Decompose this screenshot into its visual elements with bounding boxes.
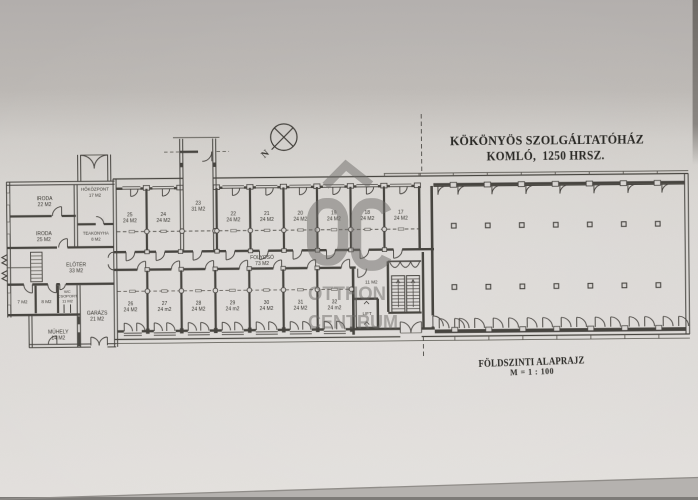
svg-text:24 M2: 24 M2 xyxy=(293,217,307,223)
svg-text:KOMLÓ, 1250 HRSZ.: KOMLÓ, 1250 HRSZ. xyxy=(487,148,605,163)
svg-text:24 M2: 24 M2 xyxy=(156,218,170,224)
svg-text:73 M2: 73 M2 xyxy=(255,261,269,267)
svg-text:24 M2: 24 M2 xyxy=(260,306,274,312)
svg-text:21 M2: 21 M2 xyxy=(90,317,104,323)
svg-text:24 M2: 24 M2 xyxy=(192,307,206,313)
svg-text:22 M2: 22 M2 xyxy=(38,202,52,208)
svg-text:24 M2: 24 M2 xyxy=(260,217,274,223)
svg-text:OTTHON: OTTHON xyxy=(308,283,386,305)
svg-text:24 M2: 24 M2 xyxy=(226,217,240,223)
svg-text:24 m2: 24 m2 xyxy=(158,307,172,313)
svg-text:M = 1 : 100: M = 1 : 100 xyxy=(510,366,554,377)
svg-text:24 M2: 24 M2 xyxy=(123,218,137,224)
svg-text:TEAKONYHA: TEAKONYHA xyxy=(83,231,109,236)
svg-text:25 M2: 25 M2 xyxy=(37,237,51,243)
svg-text:24 M2: 24 M2 xyxy=(124,307,138,313)
svg-text:8 M2: 8 M2 xyxy=(41,299,52,304)
svg-text:33 M2: 33 M2 xyxy=(69,268,83,274)
svg-text:24 m2: 24 m2 xyxy=(226,306,240,312)
svg-text:17 M2: 17 M2 xyxy=(89,193,102,198)
svg-text:7 M2: 7 M2 xyxy=(17,299,28,304)
svg-text:24 M2: 24 M2 xyxy=(394,216,408,222)
svg-text:24 M2: 24 M2 xyxy=(294,306,308,312)
svg-text:24 m2: 24 m2 xyxy=(328,305,342,311)
svg-text:14 M2: 14 M2 xyxy=(51,335,65,341)
svg-text:HŐKÖZPONT: HŐKÖZPONT xyxy=(81,187,109,192)
svg-text:11 M2: 11 M2 xyxy=(62,298,74,303)
svg-text:31 M2: 31 M2 xyxy=(191,207,205,213)
svg-text:24 M2: 24 M2 xyxy=(360,216,374,222)
svg-text:KÖKÖNYÖS SZOLGÁLTATÓHÁZ: KÖKÖNYÖS SZOLGÁLTATÓHÁZ xyxy=(450,132,644,148)
svg-text:8 M2: 8 M2 xyxy=(91,237,101,242)
svg-text:CENTRUM: CENTRUM xyxy=(308,312,398,334)
